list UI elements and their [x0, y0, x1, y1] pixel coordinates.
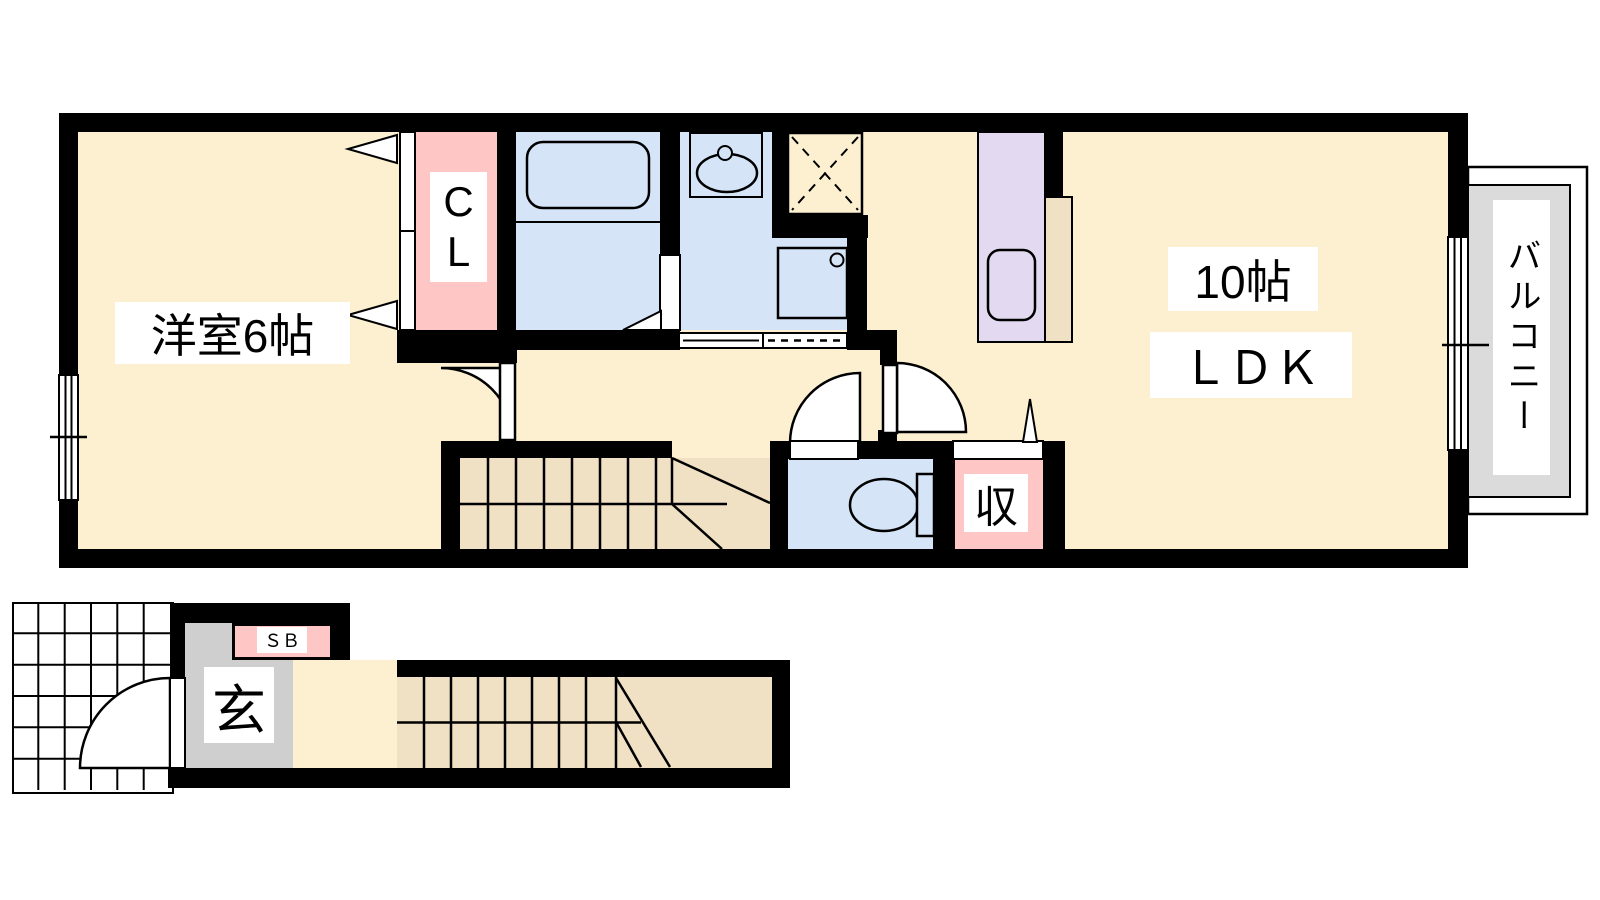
room-toilet	[788, 459, 933, 549]
wall-toilet-storage	[933, 441, 955, 549]
wall-right	[1448, 113, 1468, 568]
wall-entry-top	[170, 603, 350, 623]
wall-washroom-fridge	[772, 132, 788, 238]
label-ldk: ＬＤＫ	[1150, 332, 1352, 398]
porch-tiles	[12, 602, 174, 794]
wall-closet-bath	[497, 132, 516, 331]
wall-bath-bottom	[497, 330, 680, 350]
stairs-lower-floor	[397, 677, 772, 768]
label-genkan: 玄	[204, 667, 274, 743]
label-balcony: バルコニー	[1493, 200, 1550, 475]
wall-bath-washroom	[660, 132, 680, 255]
wall-toilet-top-right	[858, 441, 937, 459]
wall-toilet-top-left	[770, 441, 792, 459]
stairs-upper-floor	[460, 458, 770, 549]
room-bathroom	[516, 132, 660, 330]
label-western-room: 洋室6帖	[115, 302, 350, 364]
wall-bottom	[59, 549, 1468, 568]
wall-entry-door-column	[170, 623, 185, 680]
wall-kitchen-stub	[1045, 132, 1063, 197]
wall-left	[59, 113, 78, 568]
label-closet: C L	[430, 172, 487, 282]
wall-storage-right	[1043, 441, 1065, 549]
entry-hall-floor	[293, 660, 397, 768]
label-ldk-size: 10帖	[1168, 247, 1318, 311]
wall-hall-stub-upper	[880, 330, 897, 365]
label-storage: 収	[964, 474, 1028, 532]
wall-stair-top	[441, 441, 672, 458]
wall-entry-top2	[348, 660, 790, 677]
room-washroom	[680, 132, 772, 330]
floor-plan-canvas: { "plan": { "type": "apartment-floor-pla…	[0, 0, 1600, 900]
room-washroom-lower	[772, 238, 847, 330]
wall-top	[59, 113, 1468, 132]
wall-fridge-bottom	[788, 215, 868, 238]
wall-entry-bottom	[168, 768, 790, 788]
label-shoe-box: ＳＢ	[257, 627, 307, 653]
